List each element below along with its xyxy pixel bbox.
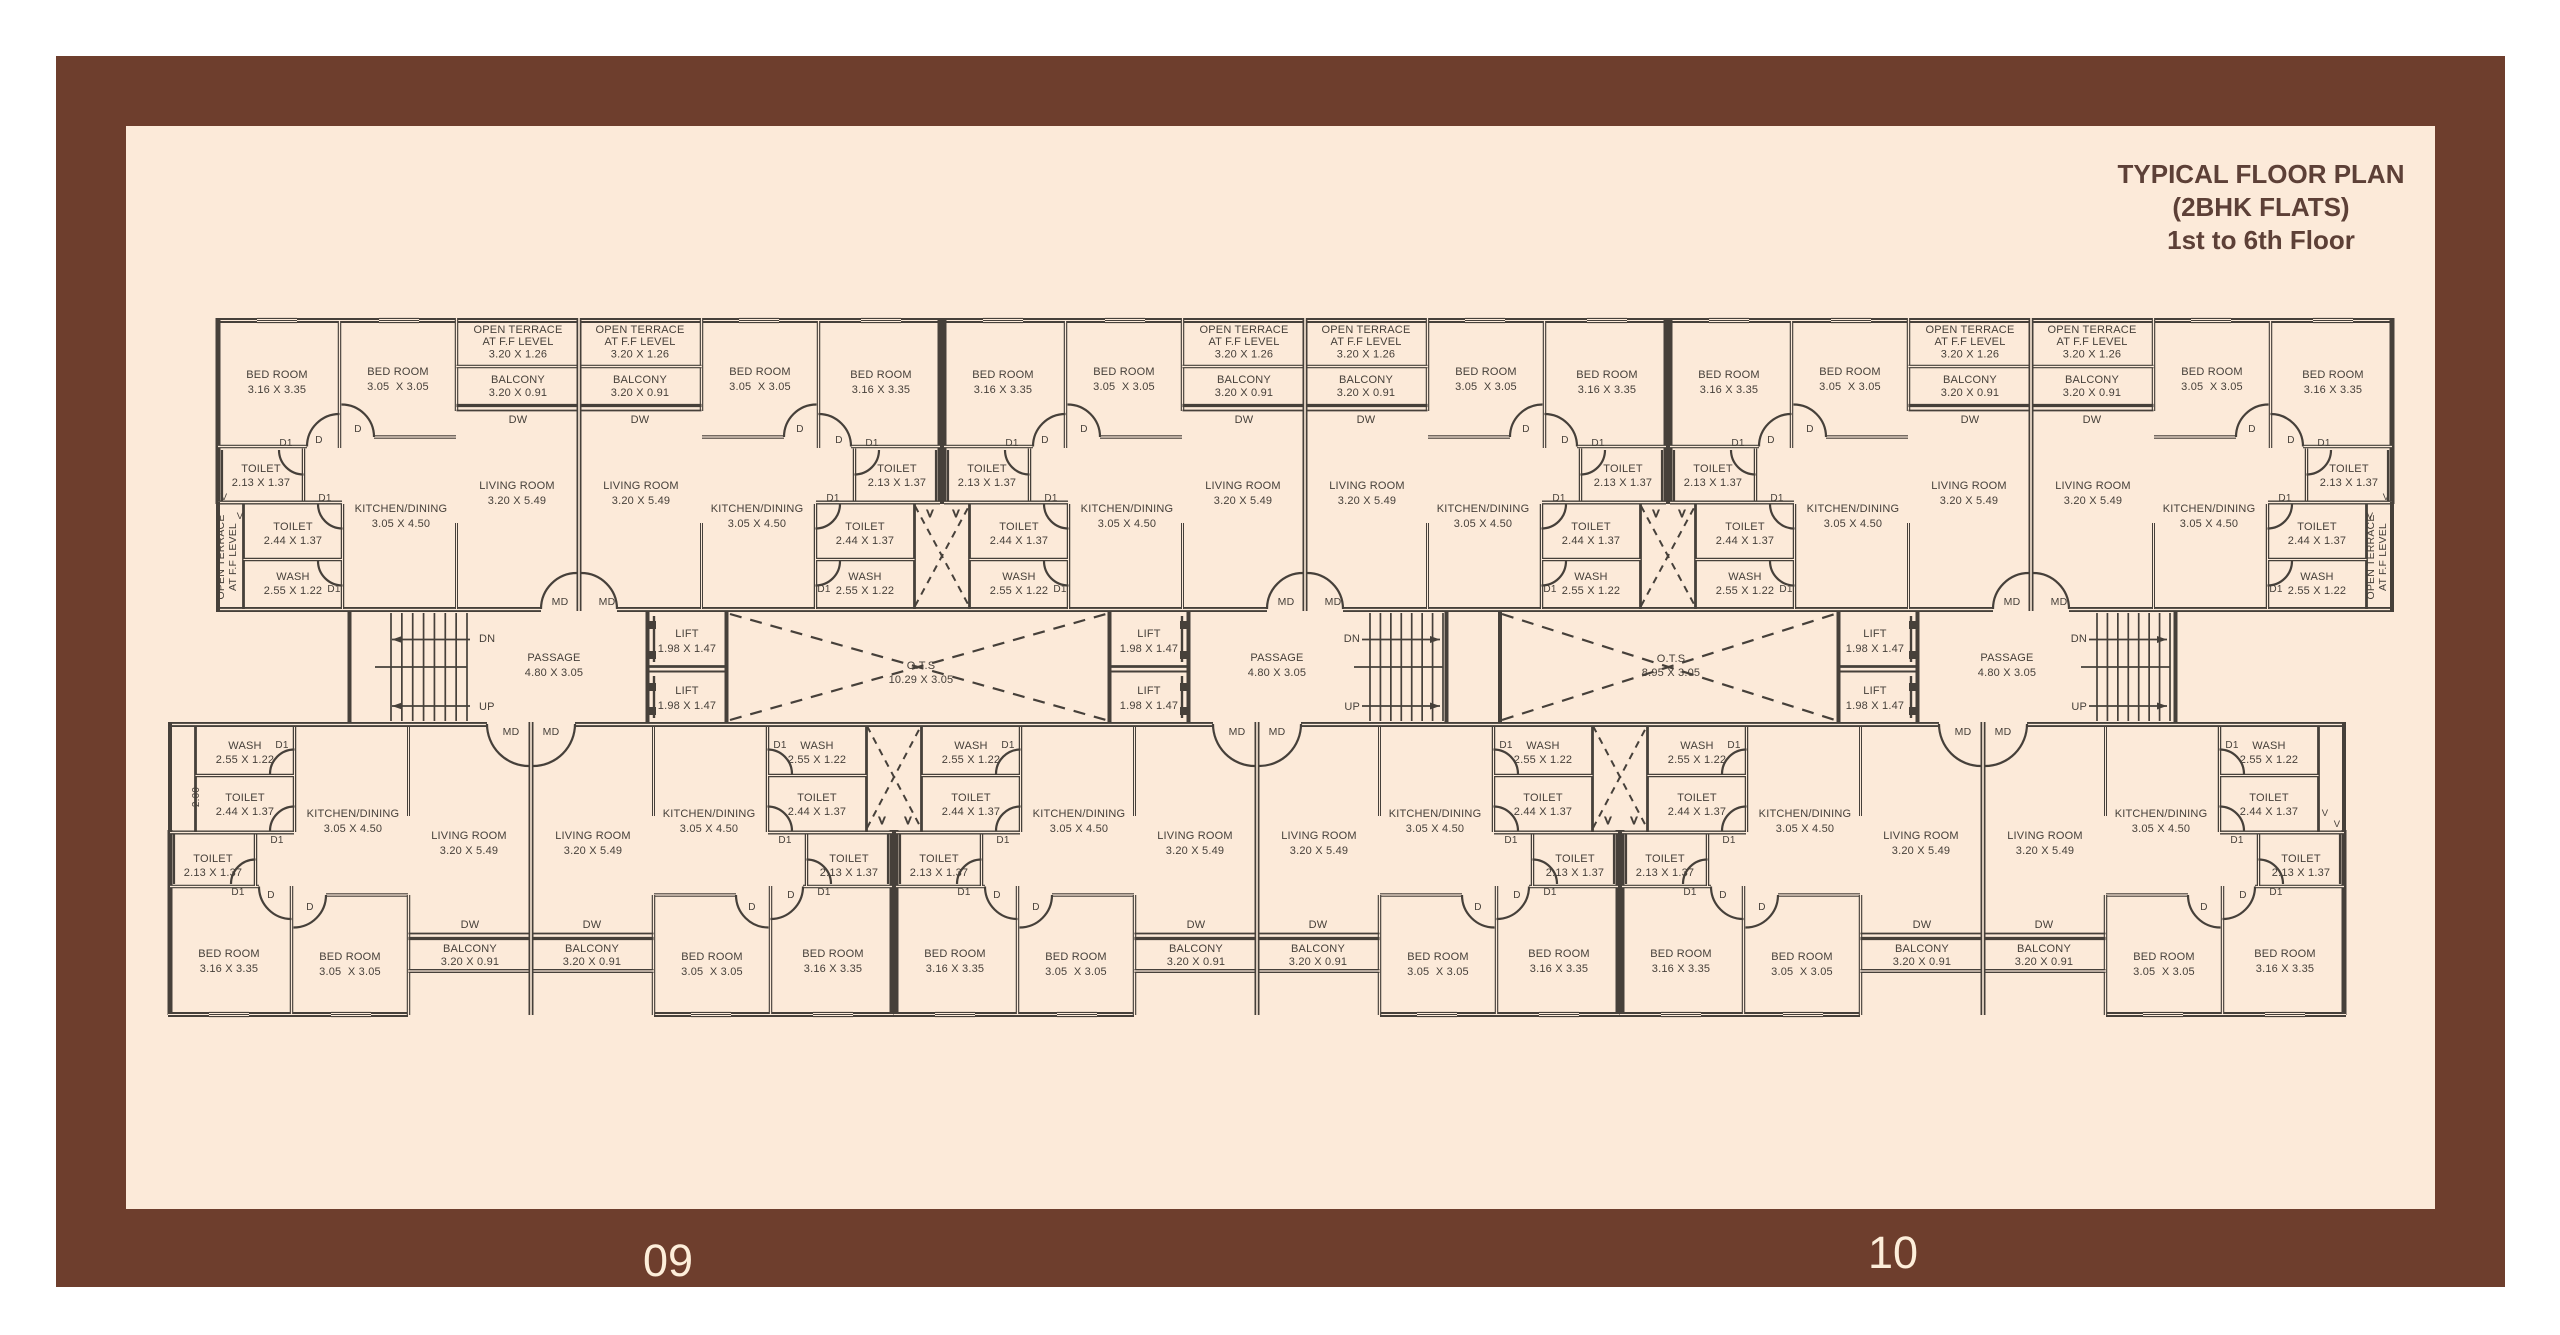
svg-text:BED ROOM: BED ROOM — [2133, 951, 2195, 963]
svg-text:MD: MD — [1955, 726, 1972, 738]
svg-text:D: D — [1474, 902, 1481, 913]
svg-text:D1: D1 — [1053, 584, 1066, 595]
svg-text:LIVING ROOM: LIVING ROOM — [1281, 830, 1357, 842]
svg-text:D1: D1 — [1504, 835, 1517, 846]
svg-text:DW: DW — [1187, 919, 1206, 931]
svg-text:DW: DW — [1309, 919, 1328, 931]
svg-text:AT F.F LEVEL: AT F.F LEVEL — [1934, 336, 2005, 348]
svg-text:OPEN TERRACE: OPEN TERRACE — [2048, 324, 2137, 336]
svg-text:10.29 X 3.05: 10.29 X 3.05 — [889, 674, 954, 686]
svg-text:1.98 X 1.47: 1.98 X 1.47 — [1846, 700, 1904, 712]
svg-text:D1: D1 — [279, 438, 292, 449]
svg-text:3.05 X 3.05: 3.05 X 3.05 — [2181, 381, 2243, 393]
svg-text:BED ROOM: BED ROOM — [972, 369, 1034, 381]
svg-text:D: D — [306, 902, 313, 913]
svg-text:D1: D1 — [1727, 740, 1740, 751]
svg-text:2.44 X 1.37: 2.44 X 1.37 — [788, 806, 846, 818]
svg-text:3.20 X 5.49: 3.20 X 5.49 — [2064, 495, 2122, 507]
svg-text:3.05 X 4.50: 3.05 X 4.50 — [2180, 518, 2238, 530]
svg-text:DW: DW — [461, 919, 480, 931]
svg-text:BED ROOM: BED ROOM — [1650, 948, 1712, 960]
svg-text:3.05 X 3.05: 3.05 X 3.05 — [1819, 381, 1881, 393]
svg-text:KITCHEN/DINING: KITCHEN/DINING — [663, 808, 756, 820]
svg-text:3.20 X 5.49: 3.20 X 5.49 — [1290, 845, 1348, 857]
svg-text:2.13 X 1.37: 2.13 X 1.37 — [2320, 477, 2378, 489]
svg-text:V: V — [2322, 808, 2329, 819]
svg-text:2.55 X 1.22: 2.55 X 1.22 — [942, 754, 1000, 766]
svg-text:BED ROOM: BED ROOM — [1093, 366, 1155, 378]
svg-text:D1: D1 — [2278, 493, 2291, 504]
svg-text:TOILET: TOILET — [1523, 792, 1563, 804]
svg-text:2.13 X 1.37: 2.13 X 1.37 — [1546, 867, 1604, 879]
svg-text:3.05 X 3.05: 3.05 X 3.05 — [681, 966, 743, 978]
svg-text:2.55 X 1.22: 2.55 X 1.22 — [990, 585, 1048, 597]
svg-text:D1: D1 — [1005, 438, 1018, 449]
svg-text:D: D — [1032, 902, 1039, 913]
svg-text:DN: DN — [1344, 633, 1360, 645]
svg-text:3.16 X 3.35: 3.16 X 3.35 — [974, 384, 1032, 396]
svg-text:D: D — [1513, 890, 1520, 901]
svg-text:MD: MD — [2051, 596, 2068, 608]
svg-text:KITCHEN/DINING: KITCHEN/DINING — [711, 503, 804, 515]
svg-text:BED ROOM: BED ROOM — [1771, 951, 1833, 963]
svg-text:BED ROOM: BED ROOM — [2254, 948, 2316, 960]
svg-text:D1: D1 — [1591, 438, 1604, 449]
svg-text:BED ROOM: BED ROOM — [2302, 369, 2364, 381]
svg-text:3.05 X 3.05: 3.05 X 3.05 — [729, 381, 791, 393]
svg-text:AT F.F LEVEL: AT F.F LEVEL — [2377, 523, 2389, 591]
svg-text:3.05 X 4.50: 3.05 X 4.50 — [1776, 823, 1834, 835]
svg-text:BED ROOM: BED ROOM — [1528, 948, 1590, 960]
svg-text:BED ROOM: BED ROOM — [246, 369, 308, 381]
svg-text:LIFT: LIFT — [1863, 685, 1886, 697]
svg-text:3.20 X 5.49: 3.20 X 5.49 — [564, 845, 622, 857]
svg-text:D1: D1 — [2269, 584, 2282, 595]
svg-text:UP: UP — [479, 701, 495, 713]
svg-text:D1: D1 — [773, 740, 786, 751]
svg-text:MD: MD — [503, 726, 520, 738]
svg-text:LIVING ROOM: LIVING ROOM — [1329, 480, 1405, 492]
svg-text:3.16 X 3.35: 3.16 X 3.35 — [2256, 963, 2314, 975]
svg-text:BED ROOM: BED ROOM — [1576, 369, 1638, 381]
svg-text:TOILET: TOILET — [2281, 853, 2321, 865]
svg-text:LIVING ROOM: LIVING ROOM — [2007, 830, 2083, 842]
svg-text:O.T.S: O.T.S — [1657, 653, 1686, 665]
svg-text:D1: D1 — [275, 740, 288, 751]
svg-text:LIVING ROOM: LIVING ROOM — [555, 830, 631, 842]
svg-text:3.16 X 3.35: 3.16 X 3.35 — [852, 384, 910, 396]
svg-text:D1: D1 — [1779, 584, 1792, 595]
svg-text:D1: D1 — [2269, 887, 2282, 898]
svg-text:TOILET: TOILET — [967, 463, 1007, 475]
svg-text:D: D — [1041, 435, 1048, 446]
svg-text:4.80 X 3.05: 4.80 X 3.05 — [1248, 667, 1306, 679]
svg-text:3.16 X 3.35: 3.16 X 3.35 — [1652, 963, 1710, 975]
svg-text:3.16 X 3.35: 3.16 X 3.35 — [200, 963, 258, 975]
svg-text:D1: D1 — [817, 887, 830, 898]
svg-text:3.05 X 4.50: 3.05 X 4.50 — [728, 518, 786, 530]
svg-text:8.95 X 3.05: 8.95 X 3.05 — [1642, 667, 1700, 679]
svg-text:MD: MD — [1229, 726, 1246, 738]
svg-text:3.20 X 5.49: 3.20 X 5.49 — [488, 495, 546, 507]
svg-text:2.00: 2.00 — [191, 787, 202, 808]
svg-text:LIFT: LIFT — [1137, 685, 1160, 697]
svg-text:BED ROOM: BED ROOM — [1407, 951, 1469, 963]
svg-text:3.16 X 3.35: 3.16 X 3.35 — [2304, 384, 2362, 396]
svg-text:V: V — [2367, 511, 2374, 522]
svg-text:3.20 X 0.91: 3.20 X 0.91 — [1167, 956, 1225, 968]
svg-text:LIVING ROOM: LIVING ROOM — [1931, 480, 2007, 492]
svg-text:TOILET: TOILET — [273, 521, 313, 533]
svg-text:D1: D1 — [2230, 835, 2243, 846]
svg-text:2.44 X 1.37: 2.44 X 1.37 — [2240, 806, 2298, 818]
svg-text:D: D — [748, 902, 755, 913]
svg-text:3.20 X 5.49: 3.20 X 5.49 — [1940, 495, 1998, 507]
svg-text:1st to 6th Floor: 1st to 6th Floor — [2167, 225, 2355, 255]
svg-text:3.05 X 3.05: 3.05 X 3.05 — [1407, 966, 1469, 978]
svg-text:3.16 X 3.35: 3.16 X 3.35 — [248, 384, 306, 396]
svg-text:AT F.F LEVEL: AT F.F LEVEL — [604, 336, 675, 348]
svg-text:AT F.F LEVEL: AT F.F LEVEL — [482, 336, 553, 348]
svg-text:BED ROOM: BED ROOM — [850, 369, 912, 381]
svg-text:D: D — [993, 890, 1000, 901]
svg-text:LIVING ROOM: LIVING ROOM — [1205, 480, 1281, 492]
svg-text:BED ROOM: BED ROOM — [319, 951, 381, 963]
svg-text:3.20 X 0.91: 3.20 X 0.91 — [2063, 387, 2121, 399]
svg-text:3.05 X 4.50: 3.05 X 4.50 — [1454, 518, 1512, 530]
svg-text:UP: UP — [1344, 701, 1360, 713]
svg-text:DW: DW — [631, 414, 650, 426]
svg-text:D1: D1 — [231, 887, 244, 898]
svg-text:DW: DW — [509, 414, 528, 426]
svg-text:3.16 X 3.35: 3.16 X 3.35 — [804, 963, 862, 975]
svg-text:2.13 X 1.37: 2.13 X 1.37 — [910, 867, 968, 879]
svg-text:MD: MD — [599, 596, 616, 608]
svg-text:D1: D1 — [1543, 584, 1556, 595]
svg-text:KITCHEN/DINING: KITCHEN/DINING — [1081, 503, 1174, 515]
svg-text:DN: DN — [2071, 633, 2087, 645]
svg-text:D: D — [1522, 424, 1529, 435]
svg-text:2.55 X 1.22: 2.55 X 1.22 — [1668, 754, 1726, 766]
svg-text:D: D — [1758, 902, 1765, 913]
svg-text:TOILET: TOILET — [1571, 521, 1611, 533]
svg-text:3.20 X 1.26: 3.20 X 1.26 — [611, 349, 669, 361]
svg-text:3.16 X 3.35: 3.16 X 3.35 — [1578, 384, 1636, 396]
svg-text:1.98 X 1.47: 1.98 X 1.47 — [1120, 643, 1178, 655]
svg-text:3.20 X 1.26: 3.20 X 1.26 — [1941, 349, 1999, 361]
svg-text:2.13 X 1.37: 2.13 X 1.37 — [958, 477, 1016, 489]
svg-text:TOILET: TOILET — [2249, 792, 2289, 804]
svg-text:D: D — [2248, 424, 2255, 435]
svg-text:2.13 X 1.37: 2.13 X 1.37 — [232, 477, 290, 489]
svg-text:LIVING ROOM: LIVING ROOM — [1883, 830, 1959, 842]
svg-text:2.13 X 1.37: 2.13 X 1.37 — [820, 867, 878, 879]
svg-text:3.20 X 0.91: 3.20 X 0.91 — [1941, 387, 1999, 399]
svg-text:BED ROOM: BED ROOM — [924, 948, 986, 960]
svg-text:DW: DW — [583, 919, 602, 931]
svg-text:D: D — [835, 435, 842, 446]
svg-text:BALCONY: BALCONY — [1943, 374, 1997, 386]
svg-text:KITCHEN/DINING: KITCHEN/DINING — [355, 503, 448, 515]
svg-text:3.05 X 4.50: 3.05 X 4.50 — [680, 823, 738, 835]
svg-text:3.16 X 3.35: 3.16 X 3.35 — [926, 963, 984, 975]
svg-text:D1: D1 — [817, 584, 830, 595]
svg-text:OPEN TERRACE: OPEN TERRACE — [596, 324, 685, 336]
svg-text:BALCONY: BALCONY — [443, 943, 497, 955]
svg-text:BED ROOM: BED ROOM — [2181, 366, 2243, 378]
svg-text:3.05 X 4.50: 3.05 X 4.50 — [1098, 518, 1156, 530]
svg-text:3.20 X 5.49: 3.20 X 5.49 — [1338, 495, 1396, 507]
svg-text:D: D — [1806, 424, 1813, 435]
svg-text:D1: D1 — [327, 584, 340, 595]
svg-text:D: D — [2239, 890, 2246, 901]
svg-text:2.13 X 1.37: 2.13 X 1.37 — [184, 867, 242, 879]
svg-text:D1: D1 — [1722, 835, 1735, 846]
svg-text:2.13 X 1.37: 2.13 X 1.37 — [2272, 867, 2330, 879]
svg-text:BALCONY: BALCONY — [1895, 943, 1949, 955]
svg-text:3.05 X 4.50: 3.05 X 4.50 — [324, 823, 382, 835]
svg-text:WASH: WASH — [954, 740, 987, 752]
svg-text:1.98 X 1.47: 1.98 X 1.47 — [1120, 700, 1178, 712]
svg-text:TOILET: TOILET — [845, 521, 885, 533]
svg-text:2.44 X 1.37: 2.44 X 1.37 — [2288, 535, 2346, 547]
svg-text:BED ROOM: BED ROOM — [1698, 369, 1760, 381]
svg-text:2.44 X 1.37: 2.44 X 1.37 — [942, 806, 1000, 818]
svg-text:TOILET: TOILET — [241, 463, 281, 475]
svg-text:PASSAGE: PASSAGE — [527, 652, 580, 664]
svg-text:LIVING ROOM: LIVING ROOM — [1157, 830, 1233, 842]
svg-text:3.16 X 3.35: 3.16 X 3.35 — [1700, 384, 1758, 396]
svg-text:MD: MD — [552, 596, 569, 608]
svg-text:DW: DW — [2083, 414, 2102, 426]
svg-text:MD: MD — [543, 726, 560, 738]
svg-text:2.55 X 1.22: 2.55 X 1.22 — [1514, 754, 1572, 766]
svg-text:D: D — [2287, 435, 2294, 446]
svg-text:KITCHEN/DINING: KITCHEN/DINING — [2163, 503, 2256, 515]
svg-text:WASH: WASH — [1728, 571, 1761, 583]
svg-text:3.05 X 3.05: 3.05 X 3.05 — [1045, 966, 1107, 978]
svg-text:3.20 X 1.26: 3.20 X 1.26 — [2063, 349, 2121, 361]
svg-text:D: D — [1719, 890, 1726, 901]
svg-text:KITCHEN/DINING: KITCHEN/DINING — [1807, 503, 1900, 515]
svg-text:3.20 X 0.91: 3.20 X 0.91 — [441, 956, 499, 968]
svg-text:V: V — [221, 492, 228, 503]
svg-text:DW: DW — [1913, 919, 1932, 931]
svg-text:D: D — [787, 890, 794, 901]
svg-text:2.13 X 1.37: 2.13 X 1.37 — [1684, 477, 1742, 489]
svg-text:2.13 X 1.37: 2.13 X 1.37 — [1594, 477, 1652, 489]
svg-text:WASH: WASH — [2300, 571, 2333, 583]
svg-text:3.20 X 1.26: 3.20 X 1.26 — [489, 349, 547, 361]
svg-text:UP: UP — [2071, 701, 2087, 713]
svg-text:LIFT: LIFT — [1863, 628, 1886, 640]
svg-text:PASSAGE: PASSAGE — [1250, 652, 1303, 664]
svg-text:3.20 X 5.49: 3.20 X 5.49 — [440, 845, 498, 857]
svg-text:2.13 X 1.37: 2.13 X 1.37 — [1636, 867, 1694, 879]
svg-text:KITCHEN/DINING: KITCHEN/DINING — [1759, 808, 1852, 820]
svg-text:TOILET: TOILET — [1645, 853, 1685, 865]
svg-text:TOILET: TOILET — [919, 853, 959, 865]
svg-text:D1: D1 — [1552, 493, 1565, 504]
svg-text:D1: D1 — [2225, 740, 2238, 751]
svg-text:DN: DN — [479, 633, 495, 645]
svg-text:2.55 X 1.22: 2.55 X 1.22 — [1716, 585, 1774, 597]
svg-text:OPEN TERRACE: OPEN TERRACE — [1200, 324, 1289, 336]
svg-text:TOILET: TOILET — [1693, 463, 1733, 475]
svg-text:OPEN TERRACE: OPEN TERRACE — [2365, 514, 2377, 599]
svg-text:BED ROOM: BED ROOM — [729, 366, 791, 378]
svg-text:D1: D1 — [778, 835, 791, 846]
svg-text:3.20 X 0.91: 3.20 X 0.91 — [1337, 387, 1395, 399]
svg-text:BALCONY: BALCONY — [1169, 943, 1223, 955]
svg-text:1.98 X 1.47: 1.98 X 1.47 — [658, 643, 716, 655]
svg-text:2.55 X 1.22: 2.55 X 1.22 — [2240, 754, 2298, 766]
svg-text:2.44 X 1.37: 2.44 X 1.37 — [1514, 806, 1572, 818]
svg-text:BED ROOM: BED ROOM — [1455, 366, 1517, 378]
svg-text:WASH: WASH — [1526, 740, 1559, 752]
svg-text:DW: DW — [2035, 919, 2054, 931]
svg-text:D1: D1 — [1001, 740, 1014, 751]
svg-text:3.20 X 5.49: 3.20 X 5.49 — [2016, 845, 2074, 857]
svg-text:3.05 X 3.05: 3.05 X 3.05 — [319, 966, 381, 978]
svg-text:2.55 X 1.22: 2.55 X 1.22 — [2288, 585, 2346, 597]
svg-text:D1: D1 — [1044, 493, 1057, 504]
svg-text:TOILET: TOILET — [1555, 853, 1595, 865]
svg-text:OPEN TERRACE: OPEN TERRACE — [1322, 324, 1411, 336]
svg-text:2.55 X 1.22: 2.55 X 1.22 — [264, 585, 322, 597]
svg-text:3.05 X 3.05: 3.05 X 3.05 — [1455, 381, 1517, 393]
svg-text:3.05 X 4.50: 3.05 X 4.50 — [1050, 823, 1108, 835]
svg-text:2.55 X 1.22: 2.55 X 1.22 — [216, 754, 274, 766]
svg-text:3.20 X 5.49: 3.20 X 5.49 — [612, 495, 670, 507]
svg-text:DW: DW — [1357, 414, 1376, 426]
svg-text:TOILET: TOILET — [951, 792, 991, 804]
svg-text:OPEN TERRACE: OPEN TERRACE — [474, 324, 563, 336]
svg-text:3.05 X 4.50: 3.05 X 4.50 — [1824, 518, 1882, 530]
svg-text:PASSAGE: PASSAGE — [1980, 652, 2033, 664]
svg-text:D1: D1 — [1543, 887, 1556, 898]
svg-text:BALCONY: BALCONY — [1217, 374, 1271, 386]
svg-text:D: D — [1080, 424, 1087, 435]
svg-text:D: D — [1561, 435, 1568, 446]
svg-text:D1: D1 — [826, 493, 839, 504]
svg-text:BED ROOM: BED ROOM — [1045, 951, 1107, 963]
svg-text:DW: DW — [1961, 414, 1980, 426]
svg-text:WASH: WASH — [800, 740, 833, 752]
svg-text:LIFT: LIFT — [1137, 628, 1160, 640]
svg-text:BED ROOM: BED ROOM — [367, 366, 429, 378]
svg-text:D1: D1 — [270, 835, 283, 846]
svg-text:3.20 X 0.91: 3.20 X 0.91 — [1893, 956, 1951, 968]
svg-text:TOILET: TOILET — [999, 521, 1039, 533]
svg-text:D: D — [267, 890, 274, 901]
svg-text:BALCONY: BALCONY — [613, 374, 667, 386]
svg-text:D: D — [796, 424, 803, 435]
svg-text:TOILET: TOILET — [1677, 792, 1717, 804]
svg-text:KITCHEN/DINING: KITCHEN/DINING — [2115, 808, 2208, 820]
svg-text:AT F.F LEVEL: AT F.F LEVEL — [1208, 336, 1279, 348]
svg-text:MD: MD — [1278, 596, 1295, 608]
svg-text:WASH: WASH — [2252, 740, 2285, 752]
svg-text:TOILET: TOILET — [2297, 521, 2337, 533]
svg-text:D1: D1 — [996, 835, 1009, 846]
svg-text:BALCONY: BALCONY — [1291, 943, 1345, 955]
svg-text:D: D — [2200, 902, 2207, 913]
svg-text:2.44 X 1.37: 2.44 X 1.37 — [990, 535, 1048, 547]
svg-text:TOILET: TOILET — [877, 463, 917, 475]
svg-text:TOILET: TOILET — [2329, 463, 2369, 475]
svg-text:2.44 X 1.37: 2.44 X 1.37 — [1562, 535, 1620, 547]
svg-text:AT F.F LEVEL: AT F.F LEVEL — [1330, 336, 1401, 348]
svg-text:3.20 X 0.91: 3.20 X 0.91 — [1289, 956, 1347, 968]
svg-text:2.44 X 1.37: 2.44 X 1.37 — [1668, 806, 1726, 818]
svg-text:3.05 X 4.50: 3.05 X 4.50 — [2132, 823, 2190, 835]
svg-text:3.05 X 4.50: 3.05 X 4.50 — [372, 518, 430, 530]
svg-text:1.98 X 1.47: 1.98 X 1.47 — [1846, 643, 1904, 655]
svg-text:LIVING ROOM: LIVING ROOM — [479, 480, 555, 492]
svg-text:3.20 X 5.49: 3.20 X 5.49 — [1214, 495, 1272, 507]
svg-text:KITCHEN/DINING: KITCHEN/DINING — [1033, 808, 1126, 820]
svg-text:TYPICAL FLOOR PLAN: TYPICAL FLOOR PLAN — [2118, 159, 2405, 189]
svg-text:LIVING ROOM: LIVING ROOM — [603, 480, 679, 492]
svg-text:WASH: WASH — [1574, 571, 1607, 583]
svg-text:09: 09 — [643, 1235, 693, 1286]
svg-text:MD: MD — [1269, 726, 1286, 738]
svg-text:3.20 X 0.91: 3.20 X 0.91 — [2015, 956, 2073, 968]
svg-text:BALCONY: BALCONY — [1339, 374, 1393, 386]
svg-text:3.20 X 5.49: 3.20 X 5.49 — [1892, 845, 1950, 857]
svg-text:D: D — [1767, 435, 1774, 446]
svg-text:D1: D1 — [865, 438, 878, 449]
svg-text:WASH: WASH — [228, 740, 261, 752]
svg-text:D1: D1 — [2317, 438, 2330, 449]
svg-text:D1: D1 — [1770, 493, 1783, 504]
svg-text:BED ROOM: BED ROOM — [802, 948, 864, 960]
svg-text:3.20 X 0.91: 3.20 X 0.91 — [611, 387, 669, 399]
svg-text:WASH: WASH — [276, 571, 309, 583]
svg-text:3.20 X 0.91: 3.20 X 0.91 — [1215, 387, 1273, 399]
svg-text:O.T.S: O.T.S — [907, 660, 936, 672]
svg-text:OPEN TERRACE: OPEN TERRACE — [1926, 324, 2015, 336]
svg-text:LIFT: LIFT — [675, 628, 698, 640]
svg-text:BALCONY: BALCONY — [2065, 374, 2119, 386]
svg-text:(2BHK FLATS): (2BHK FLATS) — [2172, 192, 2349, 222]
svg-text:2.44 X 1.37: 2.44 X 1.37 — [264, 535, 322, 547]
svg-text:4.80 X 3.05: 4.80 X 3.05 — [1978, 667, 2036, 679]
svg-text:3.20 X 1.26: 3.20 X 1.26 — [1337, 349, 1395, 361]
svg-text:TOILET: TOILET — [1603, 463, 1643, 475]
svg-text:2.55 X 1.22: 2.55 X 1.22 — [1562, 585, 1620, 597]
svg-text:3.20 X 0.91: 3.20 X 0.91 — [563, 956, 621, 968]
svg-text:BED ROOM: BED ROOM — [198, 948, 260, 960]
svg-text:2.55 X 1.22: 2.55 X 1.22 — [836, 585, 894, 597]
svg-text:LIVING ROOM: LIVING ROOM — [2055, 480, 2131, 492]
svg-text:1.98 X 1.47: 1.98 X 1.47 — [658, 700, 716, 712]
svg-text:3.20 X 0.91: 3.20 X 0.91 — [489, 387, 547, 399]
svg-text:D1: D1 — [1499, 740, 1512, 751]
svg-text:2.44 X 1.37: 2.44 X 1.37 — [1716, 535, 1774, 547]
svg-text:LIVING ROOM: LIVING ROOM — [431, 830, 507, 842]
svg-text:KITCHEN/DINING: KITCHEN/DINING — [1389, 808, 1482, 820]
svg-text:D1: D1 — [1683, 887, 1696, 898]
svg-text:D: D — [315, 435, 322, 446]
svg-text:WASH: WASH — [1680, 740, 1713, 752]
svg-text:2.55 X 1.22: 2.55 X 1.22 — [788, 754, 846, 766]
svg-text:TOILET: TOILET — [797, 792, 837, 804]
svg-text:WASH: WASH — [848, 571, 881, 583]
svg-text:KITCHEN/DINING: KITCHEN/DINING — [307, 808, 400, 820]
svg-text:TOILET: TOILET — [225, 792, 265, 804]
